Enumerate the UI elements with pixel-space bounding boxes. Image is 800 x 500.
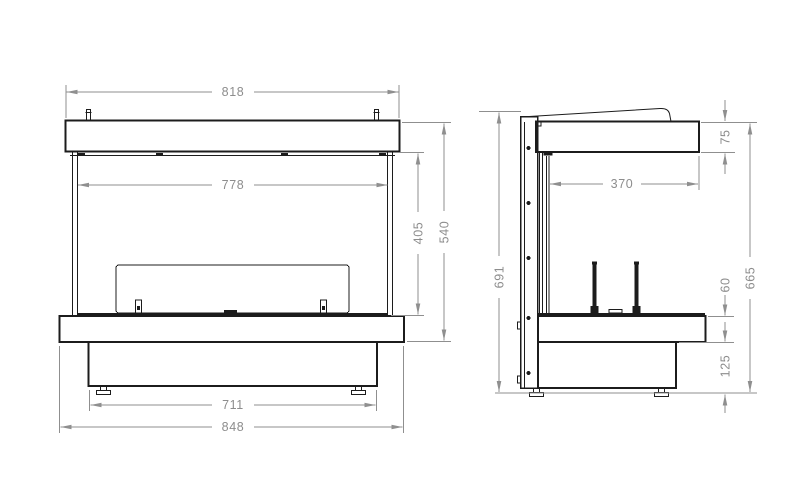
side-screws xyxy=(527,146,531,375)
dim-label: 711 xyxy=(222,398,244,412)
front-deck-fittings xyxy=(136,300,327,313)
dim-front-height: 665 xyxy=(701,123,758,393)
dim-opening-height: 405 xyxy=(391,153,426,316)
dim-hood-height: 75 xyxy=(701,100,735,174)
technical-drawing: 818 778 405 540 711 xyxy=(0,0,800,500)
dim-label: 540 xyxy=(438,221,452,244)
side-deck-fitting xyxy=(609,310,622,314)
dim-upper-height: 540 xyxy=(402,123,452,342)
front-feet xyxy=(97,386,366,395)
side-hood xyxy=(536,122,699,153)
front-view: 818 778 405 540 711 xyxy=(60,85,452,434)
dim-label: 691 xyxy=(493,266,507,289)
side-glass-clamp xyxy=(544,153,553,156)
dim-label: 848 xyxy=(222,420,245,434)
dim-label: 818 xyxy=(222,85,245,99)
front-burner-tray xyxy=(60,316,405,342)
dim-base-width: 711 xyxy=(90,390,377,412)
side-burner-tray xyxy=(538,316,706,342)
dim-label: 665 xyxy=(744,267,758,290)
side-view: 691 665 75 370 60 125 xyxy=(479,100,758,413)
side-back-panel xyxy=(521,117,538,389)
dim-cap-width: 818 xyxy=(66,85,399,118)
dim-glass-width: 778 xyxy=(78,178,388,192)
dim-depth: 370 xyxy=(550,156,699,191)
dim-label: 778 xyxy=(222,178,245,192)
side-feet xyxy=(530,388,669,397)
dim-label: 370 xyxy=(611,177,634,191)
dim-label: 75 xyxy=(719,129,733,144)
dim-label: 60 xyxy=(719,277,733,292)
side-top-lid xyxy=(521,108,671,121)
dim-base-height: 125 xyxy=(719,355,733,413)
side-base-box xyxy=(538,342,676,388)
front-base-box xyxy=(89,342,378,386)
front-top-cap xyxy=(66,121,400,152)
drawing-svg: 818 778 405 540 711 xyxy=(0,0,800,500)
front-right-column xyxy=(388,152,393,317)
side-glass xyxy=(540,153,550,314)
front-inner-glass-panel xyxy=(116,265,349,313)
side-burner-pins xyxy=(590,262,640,314)
front-left-column xyxy=(73,152,78,317)
dim-label: 405 xyxy=(412,222,426,245)
dim-label: 125 xyxy=(719,355,733,378)
dim-burner-height: 60 xyxy=(679,277,734,342)
front-cap-bolts xyxy=(86,110,380,121)
